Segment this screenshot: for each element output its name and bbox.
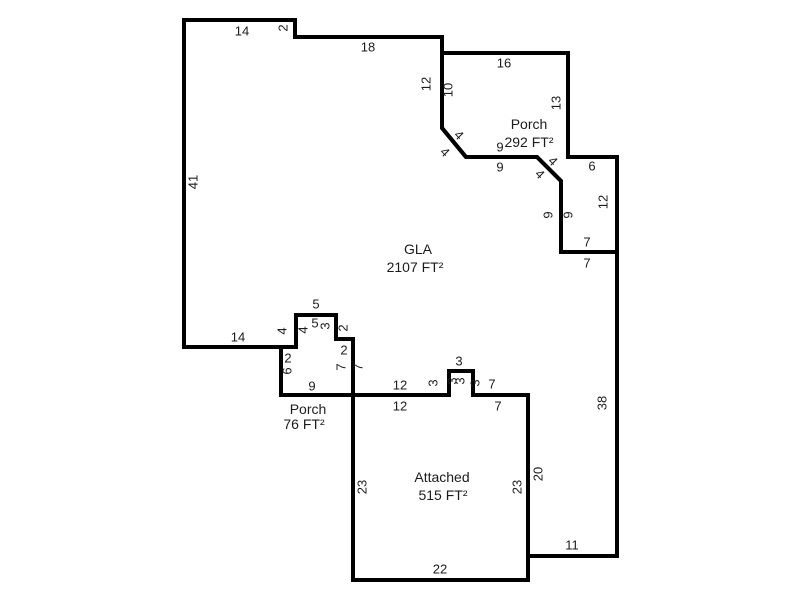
dimension-label: 10 (441, 83, 456, 97)
dimension-label: 2 (276, 24, 291, 31)
dimension-label: 2 (340, 343, 347, 358)
dimension-label: 12 (393, 378, 407, 393)
dimension-label: 2 (284, 351, 291, 366)
dimension-label: 23 (355, 480, 370, 494)
attached-area-label: 515 FT² (418, 487, 467, 503)
dimension-label: 12 (393, 399, 407, 414)
dimension-label: 20 (531, 467, 546, 481)
dimension-label: 9 (308, 379, 315, 394)
porch-upper-name-label: Porch (511, 116, 548, 132)
dimension-label: 13 (549, 96, 564, 110)
dimension-label: 38 (595, 396, 610, 410)
porch-upper-area-label: 292 FT² (504, 134, 553, 150)
dimension-label: 16 (497, 56, 511, 71)
dimension-label: 22 (433, 562, 447, 577)
dimension-label: 41 (186, 175, 201, 189)
dimension-label: 7 (494, 399, 501, 414)
dimension-label: 7 (583, 256, 590, 271)
dimension-label: 4 (532, 166, 548, 182)
dimension-label: 2 (336, 324, 351, 331)
floor-plan-canvas: GLA2107 FT²Porch292 FT²Porch76 FT²Attach… (0, 0, 800, 600)
dimension-label: 7 (488, 377, 495, 392)
dimension-label: 23 (510, 480, 525, 494)
dimension-label: 12 (419, 77, 434, 91)
dimension-label: 3 (455, 354, 462, 369)
dimension-label: 3 (318, 322, 333, 329)
dimension-label: 6 (280, 367, 295, 374)
dimension-label: 3 (453, 377, 468, 384)
dimension-label: 14 (235, 24, 249, 39)
gla-name-label: GLA (404, 241, 433, 257)
gla-area-label: 2107 FT² (387, 259, 444, 275)
dimension-label: 7 (583, 235, 590, 250)
dimension-label: 9 (561, 211, 576, 218)
dimension-label: 3 (426, 379, 441, 386)
dimension-label: 7 (334, 363, 349, 370)
floor-plan-sketch: GLA2107 FT²Porch292 FT²Porch76 FT²Attach… (0, 0, 800, 600)
dimension-label: 9 (496, 160, 503, 175)
dimension-label: 3 (468, 379, 483, 386)
dimension-label: 18 (361, 40, 375, 55)
dimension-label: 7 (351, 363, 366, 370)
dimension-label: 9 (541, 211, 556, 218)
dimension-label: 12 (596, 195, 611, 209)
porch-lower-area-label: 76 FT² (283, 416, 325, 432)
dimension-label: 11 (565, 538, 579, 553)
porch-upper-outline (442, 53, 617, 252)
attached-name-label: Attached (414, 469, 469, 485)
dimension-label: 5 (312, 297, 319, 312)
dimension-label: 6 (588, 159, 595, 174)
dimension-label: 4 (437, 144, 453, 160)
dimension-label: 14 (231, 330, 245, 345)
dimension-label: 4 (296, 326, 311, 333)
dimension-label: 4 (275, 327, 290, 334)
dimension-label: 9 (496, 140, 503, 155)
porch-lower-name-label: Porch (290, 401, 327, 417)
